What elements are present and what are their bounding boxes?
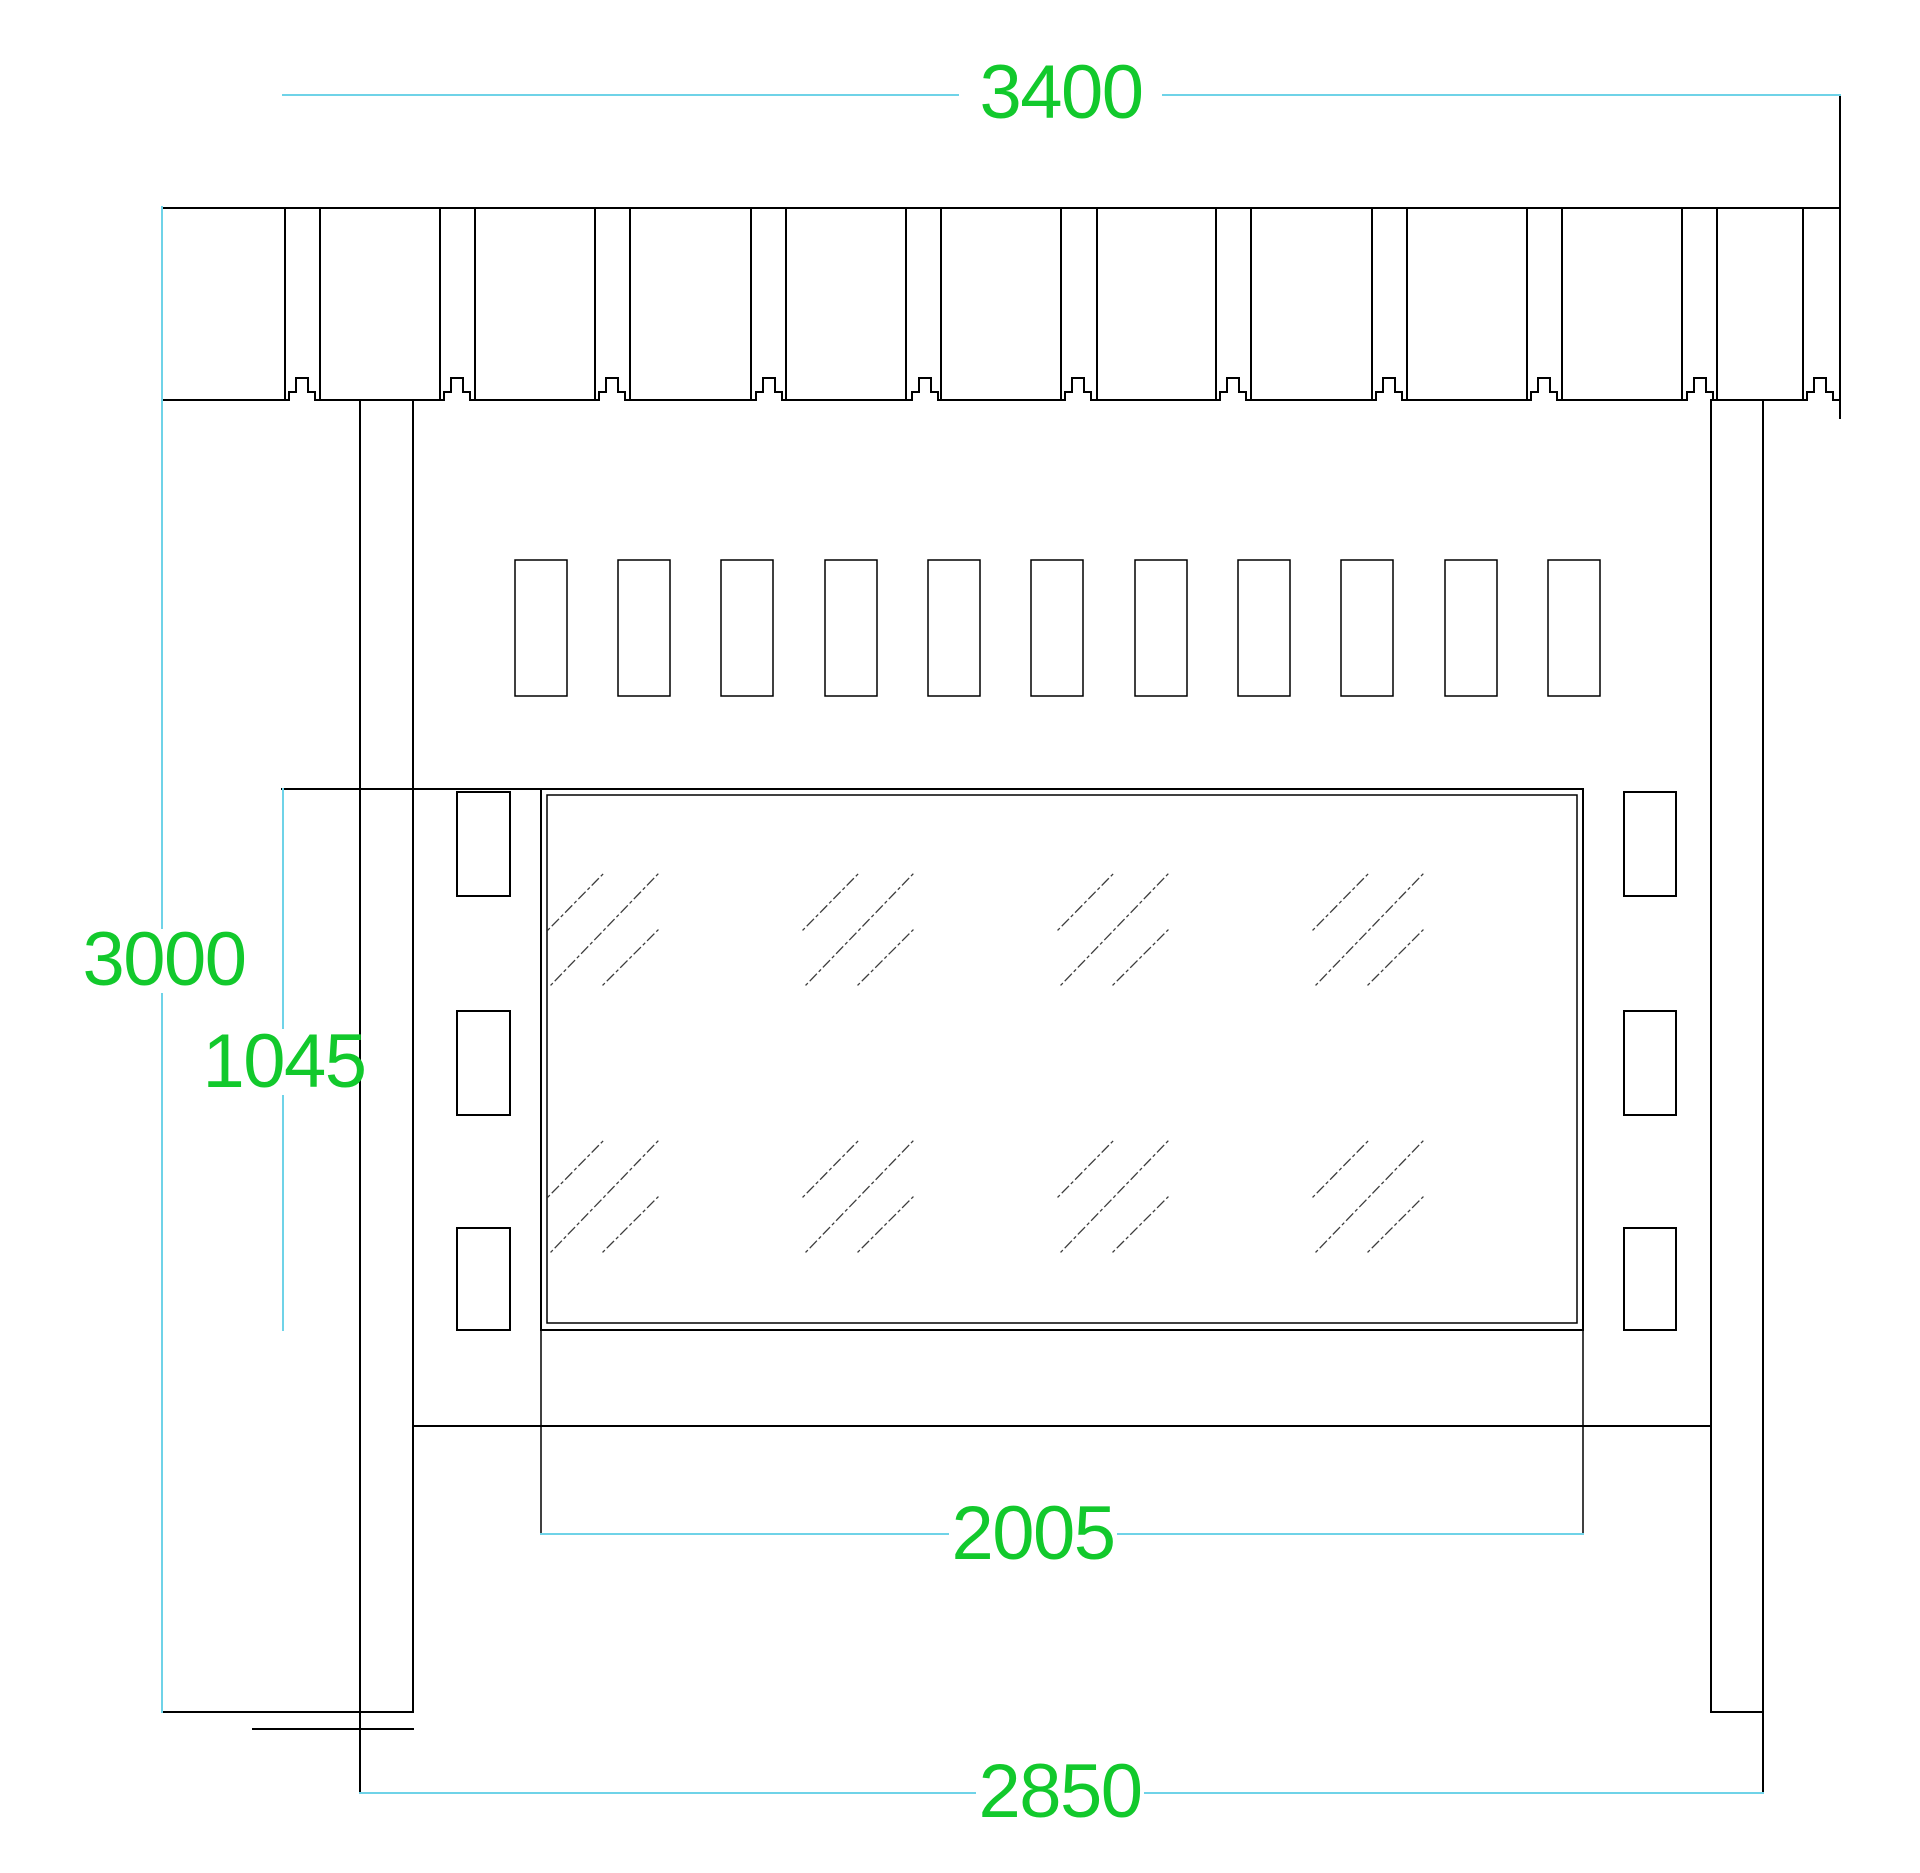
elevation-drawing (0, 0, 1920, 1873)
side-brackets (457, 792, 1676, 1330)
rails-and-ground (163, 789, 1763, 1729)
dim-label-overall-height: 3000 (82, 922, 245, 998)
dim-label-overall-width: 3400 (979, 55, 1142, 131)
glass-hatch (548, 873, 1423, 1252)
glass-panel (541, 789, 1583, 1534)
dim-label-glass-width: 2005 (951, 1496, 1114, 1572)
right-post (1711, 400, 1763, 1793)
purlin-row (515, 560, 1600, 696)
roof-band (162, 96, 1840, 418)
drawing-canvas: 3400 3000 1045 2005 2850 (0, 0, 1920, 1873)
dim-label-post-span: 2850 (978, 1754, 1141, 1830)
left-post (360, 400, 413, 1793)
dim-label-glass-height: 1045 (202, 1024, 365, 1100)
